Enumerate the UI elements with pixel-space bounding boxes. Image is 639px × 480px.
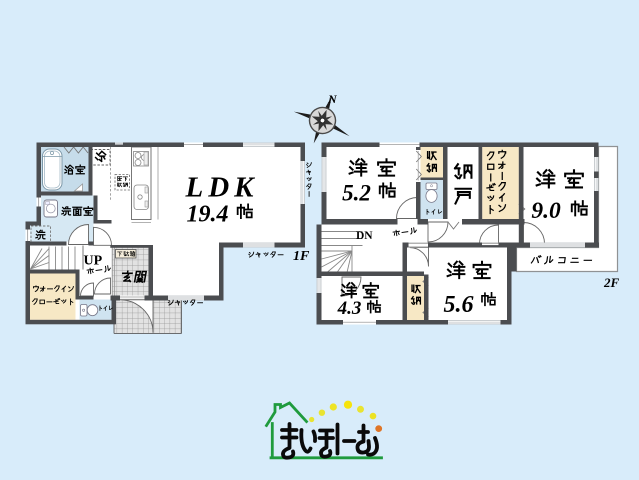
svg-text:9.0: 9.0 — [531, 198, 561, 224]
svg-text:5.6: 5.6 — [444, 292, 474, 318]
svg-text:1F: 1F — [293, 249, 310, 264]
svg-text:5.2: 5.2 — [342, 181, 371, 206]
svg-text:UP: UP — [84, 254, 103, 269]
svg-text:DN: DN — [356, 230, 373, 242]
svg-text:LDK: LDK — [185, 172, 259, 204]
svg-text:4.3: 4.3 — [337, 298, 362, 319]
svg-text:19.4: 19.4 — [187, 202, 229, 228]
svg-text:N: N — [327, 92, 338, 106]
svg-text:2F: 2F — [603, 275, 620, 290]
